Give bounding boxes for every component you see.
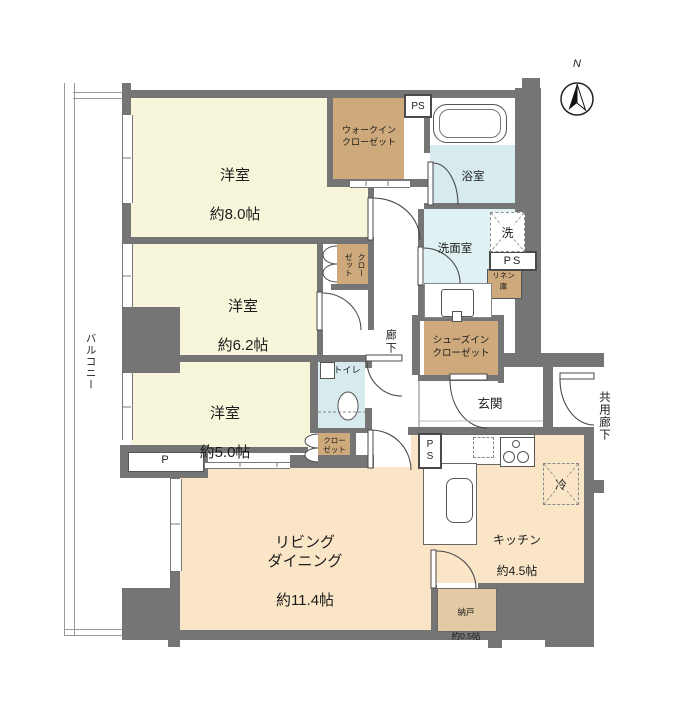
pillar-bottom-left: [122, 588, 180, 640]
floor-plan: PS PS PS 洗 冷: [0, 0, 698, 707]
wall-bath-bottom: [424, 203, 515, 209]
wall-right-lower: [584, 427, 594, 631]
washer-space: 洗: [490, 212, 525, 252]
door-arc-living: [371, 430, 411, 470]
storage-size: 約0.5帖: [452, 631, 481, 641]
pipe-space-mid-box: PS: [489, 251, 537, 271]
kitchen-name: キッチン: [493, 533, 541, 547]
balcony-rail-left: [64, 83, 75, 635]
entrance-label: 玄関: [460, 396, 520, 412]
balcony-rail-top: [73, 92, 122, 99]
wall-left-b: [122, 203, 131, 244]
sliding-door-wic: [350, 180, 410, 188]
bedroom8-size: 約8.0帖: [210, 206, 261, 223]
bedroom5-size: 約5.0帖: [200, 444, 251, 461]
storage-label: 納戸 約0.5帖: [436, 595, 496, 643]
north-label: N: [566, 57, 588, 71]
wall-top: [122, 90, 527, 98]
bedroom8-label: 洋室 約8.0帖: [160, 146, 310, 224]
washroom-label: 洗面室: [415, 242, 495, 257]
window-bedroom6: [122, 244, 133, 307]
door-arc-toilet: [367, 361, 402, 396]
wall-left-a: [122, 83, 131, 115]
window-living-top: [205, 462, 290, 469]
bedroom6-label: 洋室 約6.2帖: [168, 277, 318, 355]
wall-right-tab: [594, 480, 604, 493]
divider-b6-b5: [131, 355, 372, 362]
wall-bl-tab: [168, 640, 180, 647]
closet6-door-bump: [323, 246, 337, 264]
wall-bottom-right-step: [545, 640, 594, 647]
vanity-faucet: [452, 311, 462, 322]
door-leaf-bedroom8: [368, 198, 373, 240]
divider-b8-b6: [131, 237, 374, 244]
pipe-space-top-box: PS: [404, 94, 432, 118]
pipe-space-top-label: PS: [411, 101, 424, 112]
balcony-label: バルコニー: [83, 324, 97, 400]
wall-corridor-left-a: [368, 187, 374, 198]
room-bedroom-8-ext: [327, 187, 368, 244]
living-dining-label: リビング ダイニング 約11.4帖: [230, 513, 380, 611]
living-dining-name: リビング ダイニング: [267, 534, 342, 571]
refrigerator-label: 冷: [555, 476, 567, 493]
wall-toilet-bottom: [310, 428, 372, 433]
door-arc-bedroom8: [373, 198, 420, 240]
bedroom6-size: 約6.2帖: [218, 337, 269, 354]
kitchen-label: キッチン 約4.5帖: [467, 517, 567, 579]
bedroom6-name: 洋室: [228, 298, 258, 315]
window-bedroom8: [122, 115, 133, 203]
shoes-in-closet-label: シューズイン クローゼット: [416, 335, 506, 361]
window-bedroom5: [122, 373, 133, 440]
toilet-label: トイレ: [322, 365, 372, 377]
closet-bedroom5-label: クロー ゼット: [318, 436, 351, 455]
pipe-space-kitchen-label: PS: [425, 439, 436, 463]
wall-toilet-left: [310, 355, 318, 433]
bathroom-label: 浴室: [443, 170, 503, 185]
wall-living-top: [290, 455, 374, 468]
door-arc-entrance: [560, 379, 594, 425]
kitchen-dashed-space: [473, 437, 494, 458]
wall-genkan-stub: [543, 367, 553, 427]
bedroom8-name: 洋室: [220, 167, 250, 184]
hallway-label: 廊下: [383, 320, 397, 364]
bedroom5-name: 洋室: [210, 405, 240, 422]
common-corridor-label: 共用廊下: [596, 385, 611, 447]
bedroom5-label: 洋室 約5.0帖: [150, 384, 300, 462]
wall-entry-top: [498, 353, 604, 367]
closet6-door-bump: [323, 264, 337, 282]
window-living-side: [170, 479, 182, 571]
wall-corridor-left-b: [368, 240, 374, 330]
wall-toilet-right-b: [365, 408, 372, 428]
north-compass: [561, 83, 593, 115]
refrigerator-space: 冷: [543, 463, 579, 505]
porch-label: P: [150, 453, 180, 467]
washer-label: 洗: [501, 224, 513, 241]
pipe-space-kitchen-box: PS: [418, 433, 442, 469]
door-arc-bedroom6: [322, 293, 361, 330]
balcony-rail-bottom: [64, 629, 122, 636]
door-leaf-entrance: [560, 373, 594, 379]
closet-bedroom6-label: クロー ゼット: [338, 247, 367, 282]
living-dining-size: 約11.4帖: [276, 592, 334, 609]
pipe-space-mid-label: PS: [504, 255, 523, 267]
linen-label: リネン 庫: [487, 271, 520, 293]
walk-in-closet-label: ウォークイン クローゼット: [324, 124, 414, 148]
stove: [500, 437, 535, 467]
kitchen-size: 約4.5帖: [497, 564, 538, 578]
wall-sic-bottom: [418, 375, 504, 381]
bathtub-inner: [439, 109, 501, 138]
storage-name: 納戸: [457, 607, 474, 617]
wall-bottom: [174, 630, 594, 640]
wall-living-left-stub: [170, 571, 180, 588]
